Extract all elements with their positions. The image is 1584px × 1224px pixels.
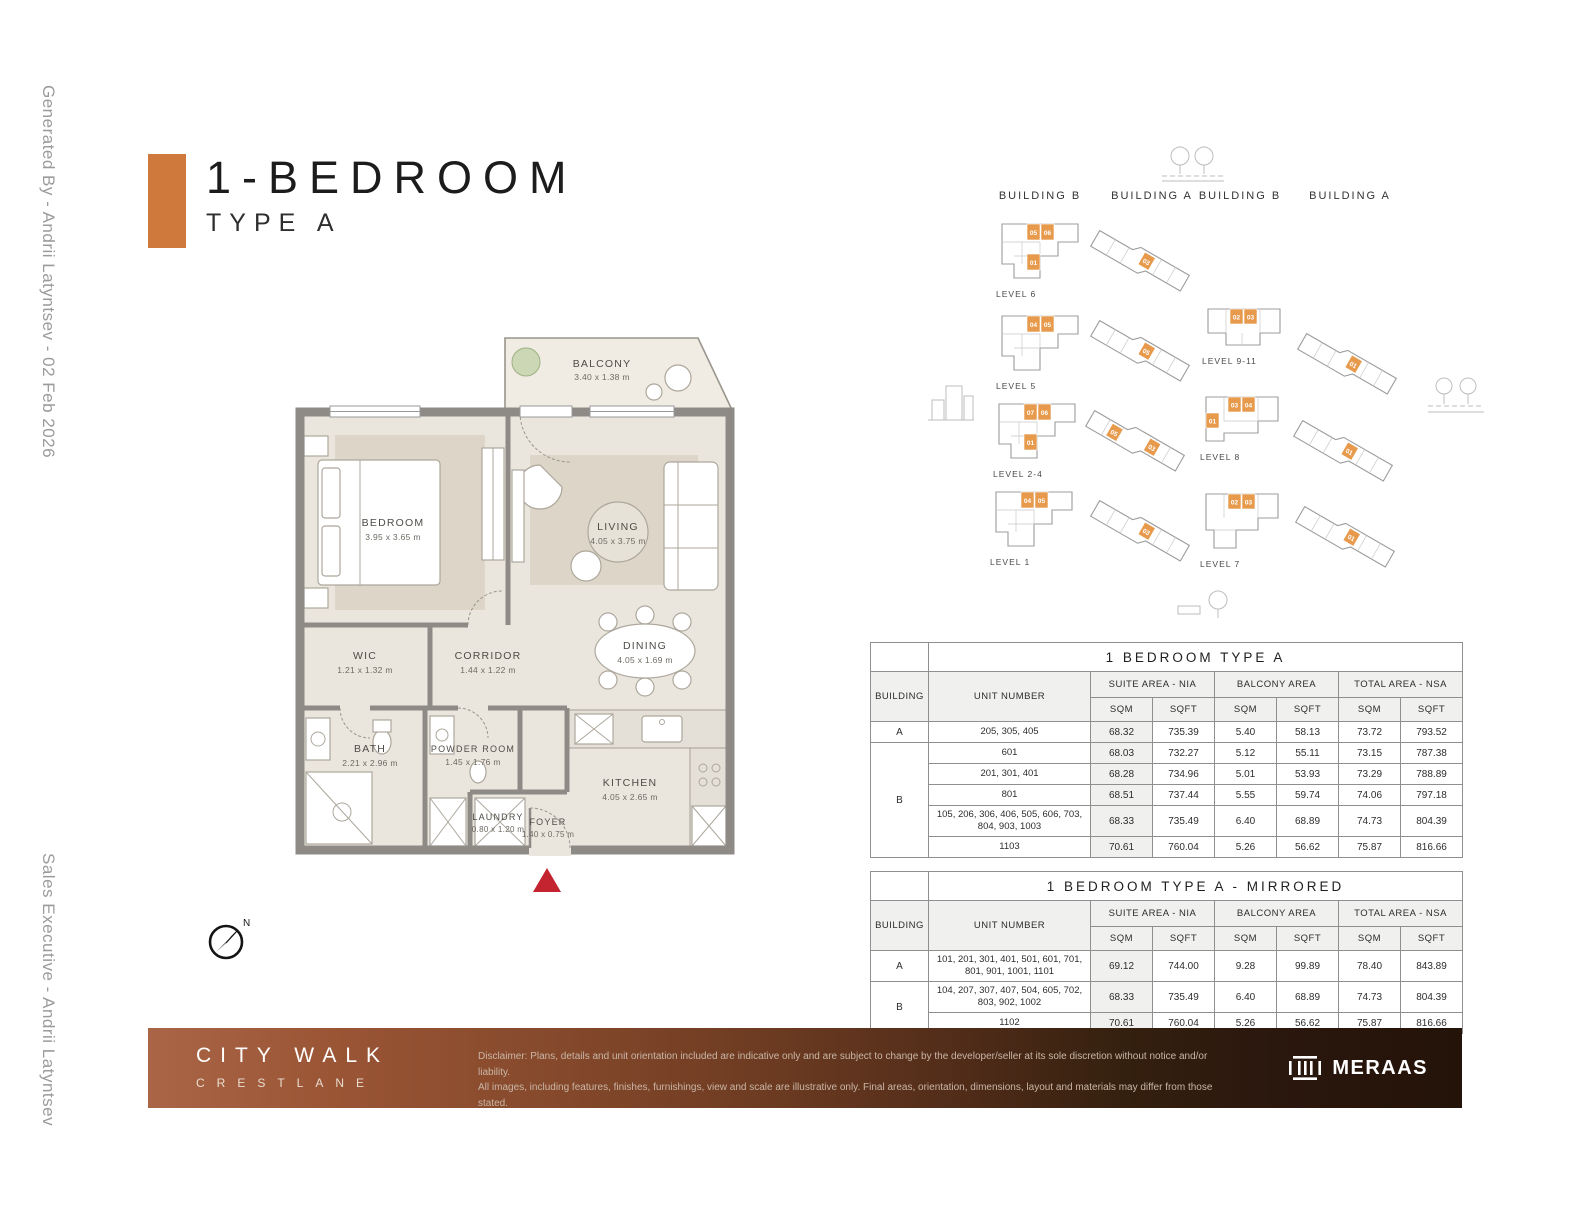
table-row: 1103 70.61 760.04 5.26 56.62 75.87 816.6… [871, 837, 1463, 858]
room-label: BALCONY [573, 358, 632, 370]
table-row: B 104, 207, 307, 407, 504, 605, 702, 803… [871, 982, 1463, 1013]
value-cell: 68.03 [1091, 743, 1153, 764]
svg-text:02: 02 [1231, 500, 1239, 507]
value-cell: 5.01 [1215, 764, 1277, 785]
trees-icon [1158, 142, 1228, 186]
value-cell: 74.06 [1339, 785, 1401, 806]
title-block: 1-BEDROOM TYPE A [148, 154, 578, 248]
sofa [664, 462, 718, 590]
pillow [322, 526, 340, 576]
disclaimer-line-1: Disclaimer: Plans, details and unit orie… [478, 1049, 1238, 1080]
page-title: 1-BEDROOM [206, 154, 578, 201]
unit-cell: 801 [929, 785, 1091, 806]
dining-chair [599, 613, 617, 631]
value-cell: 5.26 [1215, 837, 1277, 858]
room-label: BATH [354, 743, 386, 755]
value-cell: 6.40 [1215, 982, 1277, 1013]
value-cell: 73.15 [1339, 743, 1401, 764]
building-column-header: BUILDING A [1111, 190, 1193, 202]
dining-chair [673, 613, 691, 631]
compass-north-label: N [243, 918, 250, 929]
title-accent-bar [148, 154, 186, 248]
col-header-unit-number: UNIT NUMBER [929, 901, 1091, 951]
value-cell: 5.55 [1215, 785, 1277, 806]
room-label: KITCHEN [603, 777, 658, 789]
unit-cell: 1103 [929, 837, 1091, 858]
svg-text:03: 03 [1247, 315, 1255, 322]
brand-subname: CRESTLANE [196, 1076, 389, 1090]
dining-chair [636, 678, 654, 696]
room-label: WIC [353, 650, 377, 662]
svg-text:07: 07 [1027, 410, 1035, 417]
table-corner-cell [871, 643, 929, 672]
value-cell: 55.11 [1277, 743, 1339, 764]
col-header-sqm: SQM [1091, 698, 1153, 722]
room-label: FOYER [529, 817, 566, 827]
value-cell: 75.87 [1339, 837, 1401, 858]
value-cell: 68.33 [1091, 982, 1153, 1013]
svg-text:05: 05 [1044, 322, 1052, 329]
tv-console [512, 470, 524, 562]
sales-executive-text: Sales Executive - Andrii Latyntsev [38, 853, 58, 1126]
svg-text:06: 06 [1041, 410, 1049, 417]
entry-marker-triangle [533, 868, 561, 892]
unit-cell: 601 [929, 743, 1091, 764]
footer-bar: CITY WALK CRESTLANE Disclaimer: Plans, d… [148, 1028, 1462, 1108]
mini-plan-building-a: 05 03 [1080, 402, 1185, 495]
room-label: CORRIDOR [455, 650, 522, 662]
area-tables: 1 BEDROOM TYPE A BUILDING UNIT NUMBER SU… [870, 642, 1462, 1047]
dining-chair [599, 671, 617, 689]
svg-text:05: 05 [1038, 498, 1046, 505]
building-cell: B [871, 982, 929, 1034]
brand-name: CITY WALK [196, 1044, 389, 1068]
value-cell: 797.18 [1401, 785, 1463, 806]
table-row: 201, 301, 401 68.28 734.96 5.01 53.93 73… [871, 764, 1463, 785]
svg-text:06: 06 [1044, 230, 1052, 237]
value-cell: 843.89 [1401, 951, 1463, 982]
col-header-sqft: SQFT [1401, 698, 1463, 722]
page-subtitle: TYPE A [206, 209, 578, 238]
pillow [322, 468, 340, 518]
col-header-building: BUILDING [871, 901, 929, 951]
room-dims: 4.05 x 3.75 m [590, 536, 645, 546]
table-title: 1 BEDROOM TYPE A - MIRRORED [929, 872, 1463, 901]
balcony-slider [520, 406, 572, 417]
mini-plan-building-a: 01 [1288, 412, 1393, 505]
value-cell: 804.39 [1401, 982, 1463, 1013]
room-dims: 2.21 x 2.96 m [342, 758, 397, 768]
col-header-sqft: SQFT [1153, 698, 1215, 722]
table-row: A 101, 201, 301, 401, 501, 601, 701, 801… [871, 951, 1463, 982]
value-cell: 58.13 [1277, 722, 1339, 743]
building-column-header: BUILDING A [1309, 190, 1391, 202]
col-header-sqm: SQM [1091, 927, 1153, 951]
col-header-sqm: SQM [1215, 927, 1277, 951]
mini-plan-building-b-level-2-4: 07 06 01 LEVEL 2-4 [993, 400, 1081, 479]
building-cell: B [871, 743, 929, 858]
svg-text:01: 01 [1030, 260, 1038, 267]
room-dims: 1.44 x 1.22 m [460, 665, 515, 675]
mini-plan-building-b-level-9-11: 02 03 LEVEL 9-11 [1202, 305, 1287, 366]
value-cell: 787.38 [1401, 743, 1463, 764]
value-cell: 5.40 [1215, 722, 1277, 743]
floor-plan: BALCONY 3.40 x 1.38 m BEDROOM 3.95 x 3.6… [230, 320, 750, 905]
table-type-a-mirrored: 1 BEDROOM TYPE A - MIRRORED BUILDING UNI… [870, 871, 1463, 1034]
level-label: LEVEL 7 [1200, 559, 1285, 569]
col-header-balcony-area: BALCONY AREA [1215, 901, 1339, 927]
meraas-logo-text: MERAAS [1332, 1057, 1428, 1080]
level-label: LEVEL 8 [1200, 452, 1285, 462]
building-cell: A [871, 722, 929, 743]
svg-text:04: 04 [1245, 403, 1253, 410]
value-cell: 816.66 [1401, 837, 1463, 858]
disclaimer-text: Disclaimer: Plans, details and unit orie… [478, 1049, 1238, 1111]
svg-text:04: 04 [1030, 322, 1038, 329]
meraas-logo: MERAAS [1287, 1054, 1428, 1082]
value-cell: 56.62 [1277, 837, 1339, 858]
bench-tree-icon [1170, 586, 1240, 626]
mini-plan-building-b-level-5: 04 05 LEVEL 5 [996, 312, 1084, 391]
svg-text:03: 03 [1231, 403, 1239, 410]
value-cell: 68.28 [1091, 764, 1153, 785]
room-label: DINING [623, 640, 667, 652]
room-label: LAUNDRY [472, 812, 523, 822]
value-cell: 74.73 [1339, 982, 1401, 1013]
trees-icon-right [1426, 372, 1486, 422]
mini-plan-building-a: 03 [1085, 222, 1190, 315]
svg-text:01: 01 [1027, 440, 1035, 447]
col-header-sqft: SQFT [1277, 698, 1339, 722]
balcony-chair [665, 365, 691, 391]
mini-plan-building-a: 01 [1290, 498, 1395, 591]
room-dims: 3.40 x 1.38 m [574, 372, 629, 382]
room-dims: 1.21 x 1.32 m [337, 665, 392, 675]
col-header-suite-area: SUITE AREA - NIA [1091, 672, 1215, 698]
value-cell: 734.96 [1153, 764, 1215, 785]
room-dims: 1.45 x 1.76 m [445, 757, 500, 767]
col-header-sqm: SQM [1339, 698, 1401, 722]
room-dims: 4.05 x 1.69 m [617, 655, 672, 665]
room-dims: 0.80 x 1.20 m [472, 825, 524, 834]
brand-block: CITY WALK CRESTLANE [196, 1044, 389, 1090]
value-cell: 5.12 [1215, 743, 1277, 764]
dining-chair [673, 671, 691, 689]
mini-plan-building-a: 03 [1085, 492, 1190, 585]
table-row: A 205, 305, 405 68.32 735.39 5.40 58.13 … [871, 722, 1463, 743]
mini-plan-building-a: 01 [1292, 325, 1397, 418]
value-cell: 788.89 [1401, 764, 1463, 785]
value-cell: 99.89 [1277, 951, 1339, 982]
value-cell: 744.00 [1153, 951, 1215, 982]
level-label: LEVEL 6 [996, 289, 1084, 299]
value-cell: 73.29 [1339, 764, 1401, 785]
value-cell: 804.39 [1401, 806, 1463, 837]
balcony-table [646, 384, 662, 400]
col-header-total-area: TOTAL AREA - NSA [1339, 901, 1463, 927]
table-corner-cell [871, 872, 929, 901]
table-type-a: 1 BEDROOM TYPE A BUILDING UNIT NUMBER SU… [870, 642, 1463, 858]
value-cell: 735.39 [1153, 722, 1215, 743]
value-cell: 735.49 [1153, 806, 1215, 837]
value-cell: 68.32 [1091, 722, 1153, 743]
mini-plan-building-b-level-1: 04 05 LEVEL 1 [990, 488, 1078, 567]
nightstand [304, 436, 328, 456]
building-key-plans: BUILDING B BUILDING A BUILDING B BUILDIN… [920, 140, 1480, 640]
brochure-page: Generated By - Andrii Latyntsev - 02 Feb… [0, 0, 1584, 1224]
col-header-building: BUILDING [871, 672, 929, 722]
value-cell: 793.52 [1401, 722, 1463, 743]
value-cell: 78.40 [1339, 951, 1401, 982]
level-label: LEVEL 5 [996, 381, 1084, 391]
room-dims: 4.05 x 2.65 m [602, 792, 657, 802]
level-label: LEVEL 2-4 [993, 469, 1081, 479]
mini-plan-building-b-level-8: 03 04 01 LEVEL 8 [1200, 393, 1285, 462]
bath-vanity [306, 718, 330, 760]
building-column-header: BUILDING B [999, 190, 1081, 202]
generated-by-text: Generated By - Andrii Latyntsev - 02 Feb… [38, 85, 58, 458]
table-row: 105, 206, 306, 406, 505, 606, 703, 804, … [871, 806, 1463, 837]
svg-text:02: 02 [1233, 315, 1241, 322]
value-cell: 73.72 [1339, 722, 1401, 743]
value-cell: 9.28 [1215, 951, 1277, 982]
svg-text:04: 04 [1024, 498, 1032, 505]
col-header-sqft: SQFT [1153, 927, 1215, 951]
city-icon [926, 378, 976, 428]
unit-cell: 205, 305, 405 [929, 722, 1091, 743]
table-title: 1 BEDROOM TYPE A [929, 643, 1463, 672]
room-label: BEDROOM [362, 517, 425, 529]
col-header-unit-number: UNIT NUMBER [929, 672, 1091, 722]
unit-cell: 201, 301, 401 [929, 764, 1091, 785]
value-cell: 69.12 [1091, 951, 1153, 982]
value-cell: 53.93 [1277, 764, 1339, 785]
unit-cell: 105, 206, 306, 406, 505, 606, 703, 804, … [929, 806, 1091, 837]
svg-text:03: 03 [1245, 500, 1253, 507]
unit-cell: 104, 207, 307, 407, 504, 605, 702, 803, … [929, 982, 1091, 1013]
entry-opening [529, 841, 571, 856]
meraas-logo-icon [1287, 1054, 1323, 1082]
room-label: LIVING [597, 521, 639, 533]
room-label: POWDER ROOM [431, 744, 515, 754]
value-cell: 68.51 [1091, 785, 1153, 806]
col-header-sqm: SQM [1215, 698, 1277, 722]
col-header-balcony-area: BALCONY AREA [1215, 672, 1339, 698]
col-header-sqm: SQM [1339, 927, 1401, 951]
value-cell: 68.33 [1091, 806, 1153, 837]
svg-text:05: 05 [1030, 230, 1038, 237]
value-cell: 737.44 [1153, 785, 1215, 806]
level-label: LEVEL 1 [990, 557, 1078, 567]
toilet-tank [373, 720, 391, 732]
value-cell: 760.04 [1153, 837, 1215, 858]
side-table [571, 551, 601, 581]
value-cell: 70.61 [1091, 837, 1153, 858]
compass: N [200, 910, 260, 970]
floor-plan-drawing: BALCONY 3.40 x 1.38 m BEDROOM 3.95 x 3.6… [230, 320, 750, 905]
mini-plan-building-b-level-7: 02 03 LEVEL 7 [1200, 490, 1285, 569]
dining-chair [636, 606, 654, 624]
room-dims: 3.95 x 3.65 m [365, 532, 420, 542]
level-label: LEVEL 9-11 [1202, 356, 1287, 366]
table-row: B 601 68.03 732.27 5.12 55.11 73.15 787.… [871, 743, 1463, 764]
nightstand [304, 588, 328, 608]
value-cell: 59.74 [1277, 785, 1339, 806]
value-cell: 68.89 [1277, 806, 1339, 837]
mini-plan-building-b-level-6: 05 06 01 LEVEL 6 [996, 220, 1084, 299]
col-header-total-area: TOTAL AREA - NSA [1339, 672, 1463, 698]
value-cell: 6.40 [1215, 806, 1277, 837]
value-cell: 68.89 [1277, 982, 1339, 1013]
plant-icon [512, 348, 540, 376]
table-row: 801 68.51 737.44 5.55 59.74 74.06 797.18 [871, 785, 1463, 806]
mini-plan-building-a: 05 [1085, 312, 1190, 405]
col-header-sqft: SQFT [1277, 927, 1339, 951]
building-column-header: BUILDING B [1199, 190, 1281, 202]
value-cell: 735.49 [1153, 982, 1215, 1013]
col-header-suite-area: SUITE AREA - NIA [1091, 901, 1215, 927]
unit-cell: 101, 201, 301, 401, 501, 601, 701, 801, … [929, 951, 1091, 982]
value-cell: 732.27 [1153, 743, 1215, 764]
room-dims: 1.40 x 0.75 m [522, 830, 574, 839]
col-header-sqft: SQFT [1401, 927, 1463, 951]
value-cell: 74.73 [1339, 806, 1401, 837]
svg-text:01: 01 [1209, 419, 1217, 426]
disclaimer-line-2: All images, including features, finishes… [478, 1080, 1238, 1111]
building-cell: A [871, 951, 929, 982]
